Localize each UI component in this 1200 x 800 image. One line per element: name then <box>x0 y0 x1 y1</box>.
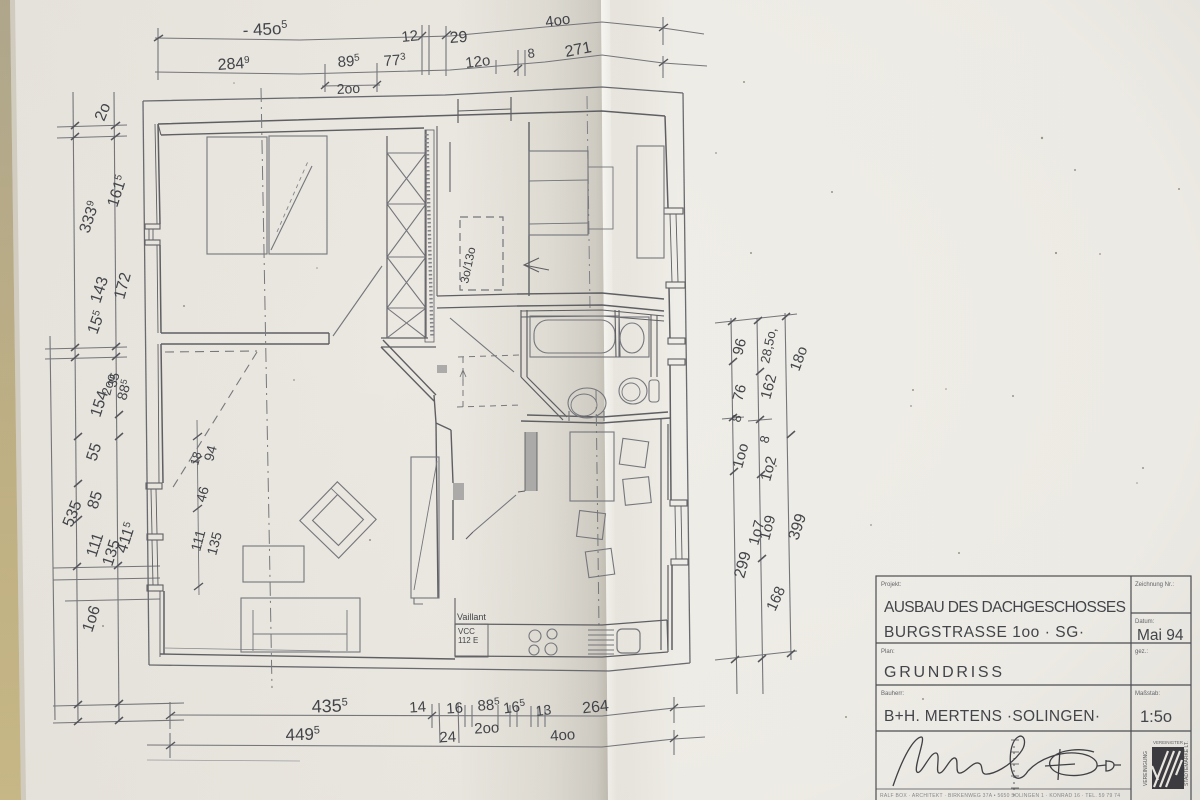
svg-text:AUSBAU DES DACHGESCHOSSES: AUSBAU DES DACHGESCHOSSES <box>884 599 1126 616</box>
svg-text:13: 13 <box>535 701 552 719</box>
svg-text:B+H. MERTENS ·SOLINGEN·: B+H. MERTENS ·SOLINGEN· <box>884 708 1100 725</box>
svg-text:1:5o: 1:5o <box>1140 708 1172 726</box>
svg-text:Datum:: Datum: <box>1135 619 1155 625</box>
svg-text:Bauherr:: Bauherr: <box>881 691 904 697</box>
svg-text:12o: 12o <box>464 52 491 72</box>
svg-text:Projekt:: Projekt: <box>881 582 902 588</box>
svg-text:Plan:: Plan: <box>881 649 895 655</box>
svg-text:VEREINIGUNG: VEREINIGUNG <box>1143 751 1149 786</box>
svg-text:gez.:: gez.: <box>1135 649 1148 655</box>
svg-text:Zeichnung Nr.:: Zeichnung Nr.: <box>1135 582 1174 588</box>
svg-text:264: 264 <box>581 698 609 718</box>
svg-text:112 E: 112 E <box>458 636 478 645</box>
svg-text:VCC: VCC <box>458 627 475 636</box>
svg-text:14: 14 <box>409 698 427 716</box>
svg-text:24: 24 <box>439 729 457 747</box>
svg-text:2oo: 2oo <box>474 719 500 737</box>
svg-text:- 45o5: - 45o5 <box>242 19 288 40</box>
svg-text:Vaillant: Vaillant <box>457 612 486 622</box>
svg-text:Maßstab:: Maßstab: <box>1135 691 1160 697</box>
svg-text:RALF BOX · ARCHITEKT · BIRKENW: RALF BOX · ARCHITEKT · BIRKENWEG 37A • 5… <box>880 793 1120 799</box>
svg-text:VEREINIGTER: VEREINIGTER <box>1153 740 1184 745</box>
svg-text:29: 29 <box>449 29 468 47</box>
svg-text:2oo: 2oo <box>336 80 360 97</box>
svg-text:16: 16 <box>446 699 464 717</box>
svg-text:STADTEMARKE LT.: STADTEMARKE LT. <box>1184 741 1190 786</box>
svg-text:4oo: 4oo <box>550 726 576 745</box>
svg-text:BURGSTRASSE 1oo · SG·: BURGSTRASSE 1oo · SG· <box>884 624 1084 641</box>
svg-text:4oo: 4oo <box>544 11 571 31</box>
svg-text:12: 12 <box>401 27 419 46</box>
svg-text:GRUNDRISS: GRUNDRISS <box>884 664 1002 681</box>
svg-text:Mai 94: Mai 94 <box>1137 627 1184 644</box>
